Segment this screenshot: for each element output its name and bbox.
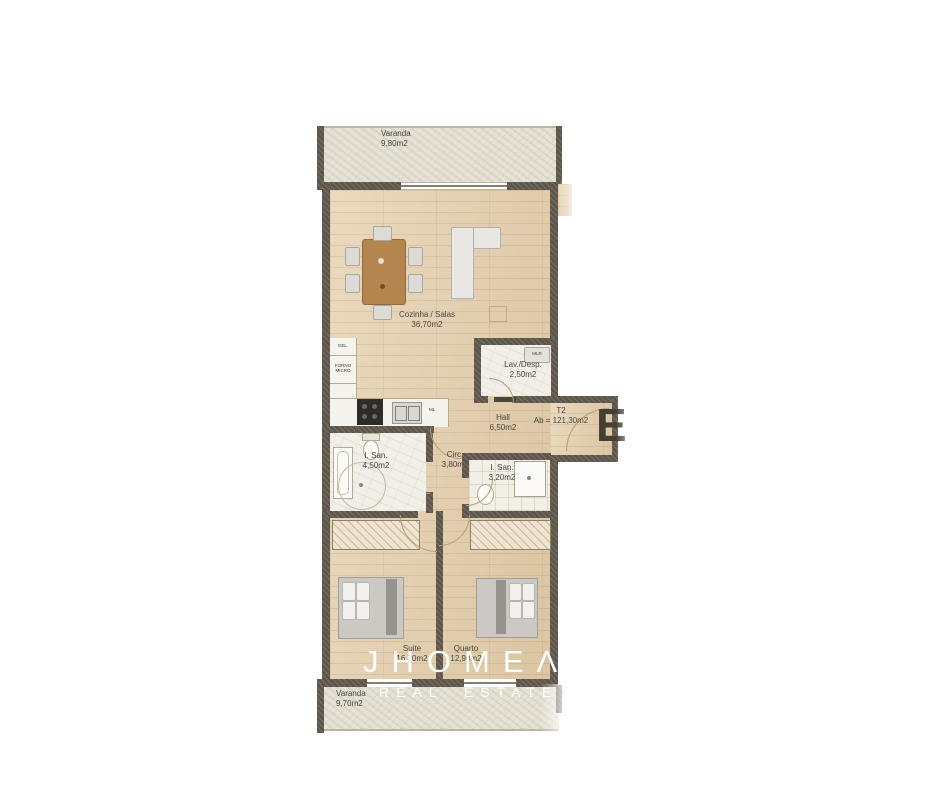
chair	[345, 274, 360, 293]
floor-plan-canvas: Varanda 9,80m2 Cozinha / Salas 36,70m2 G…	[0, 0, 940, 788]
room-area: 4,50m2	[363, 461, 390, 471]
pillow	[342, 601, 356, 620]
edge-fade	[616, 390, 646, 470]
watermark-brand: JHOMEΛ	[363, 644, 570, 680]
dining-table	[362, 239, 406, 305]
room-label-isan-suite: I. San. 4,50m2	[363, 451, 390, 472]
balcony-bottom-edge	[323, 729, 559, 731]
room-name: I. San.	[363, 451, 390, 461]
chair	[408, 274, 423, 293]
room-name: Hall	[490, 413, 517, 423]
room-label-cozinha-salas: Cozinha / Salas 36,70m2	[399, 310, 455, 331]
kitchen-sink	[392, 402, 422, 424]
oven-label-2: MICRO	[336, 368, 351, 373]
table-decor	[378, 258, 384, 264]
chair	[373, 226, 392, 241]
wall-right-outer	[550, 182, 558, 402]
room-label-isan: I. San. 3,20m2	[489, 463, 516, 484]
room-name: Varanda	[381, 129, 411, 139]
fridge: GEL.	[330, 338, 356, 356]
wall	[474, 338, 558, 345]
wall	[462, 453, 469, 478]
wall	[462, 511, 551, 518]
shower-tray	[514, 461, 546, 497]
bed-runner	[496, 580, 506, 634]
wall	[322, 426, 434, 433]
pillow	[356, 601, 370, 620]
edge-fade	[558, 182, 584, 222]
room-area: 9,70m2	[336, 699, 366, 709]
wall	[317, 679, 367, 687]
drain	[359, 483, 363, 487]
pillow	[356, 582, 370, 601]
chair	[345, 247, 360, 266]
pillow	[342, 582, 356, 601]
wall	[474, 338, 481, 403]
wall	[550, 455, 618, 462]
window-sill	[401, 182, 507, 183]
room-area: 3,20m2	[489, 473, 516, 483]
wall	[426, 492, 433, 513]
balcony-top-edge	[323, 126, 557, 128]
side-table	[489, 306, 507, 322]
pillow	[522, 601, 535, 619]
chair	[408, 247, 423, 266]
room-area: 6,50m2	[490, 423, 517, 433]
washing-machine-label: MLR	[525, 351, 549, 356]
balcony-top-floor	[323, 127, 557, 183]
stove	[357, 399, 383, 425]
room-name: Varanda	[336, 689, 366, 699]
room-label-varanda-top: Varanda 9,80m2	[381, 129, 411, 150]
room-name: I. San.	[489, 463, 516, 473]
room-name: Cozinha / Salas	[399, 310, 455, 320]
wall	[556, 126, 562, 188]
wall-left-outer	[322, 182, 330, 686]
room-label-varanda-bottom: Varanda 9,70m2	[336, 689, 366, 710]
room-label-hall: Hall 6,50m2	[490, 413, 517, 434]
wall	[462, 453, 551, 460]
table-decor	[380, 284, 385, 289]
room-area: 9,80m2	[381, 139, 411, 149]
bed-runner	[386, 579, 397, 635]
washer-label: ML	[429, 407, 435, 412]
room-area: 36,70m2	[399, 320, 455, 330]
pillow	[509, 583, 522, 601]
pillow	[509, 601, 522, 619]
fridge-label: GEL.	[330, 343, 356, 348]
wall	[317, 126, 324, 188]
sofa-chaise	[451, 227, 474, 299]
plan-type-label: T2 Ab = 121,30m2	[534, 406, 588, 427]
kitchen-counter-row	[330, 398, 449, 427]
room-name: Lav./Desp.	[504, 360, 542, 370]
chair	[373, 305, 392, 320]
plan-type-code: T2	[534, 406, 588, 416]
room-area: 2,50m2	[504, 370, 542, 380]
oven-microwave: FORNO MICRO	[330, 357, 356, 384]
wardrobe-quarto	[470, 520, 551, 550]
wall	[317, 685, 324, 733]
wall	[474, 396, 488, 403]
watermark-tagline: REAL ESTATE	[379, 684, 558, 700]
pillow	[522, 583, 535, 601]
window-slider	[401, 185, 507, 187]
plan-type-area: Ab = 121,30m2	[534, 416, 588, 426]
room-label-lav-desp: Lav./Desp. 2,50m2	[504, 360, 542, 381]
